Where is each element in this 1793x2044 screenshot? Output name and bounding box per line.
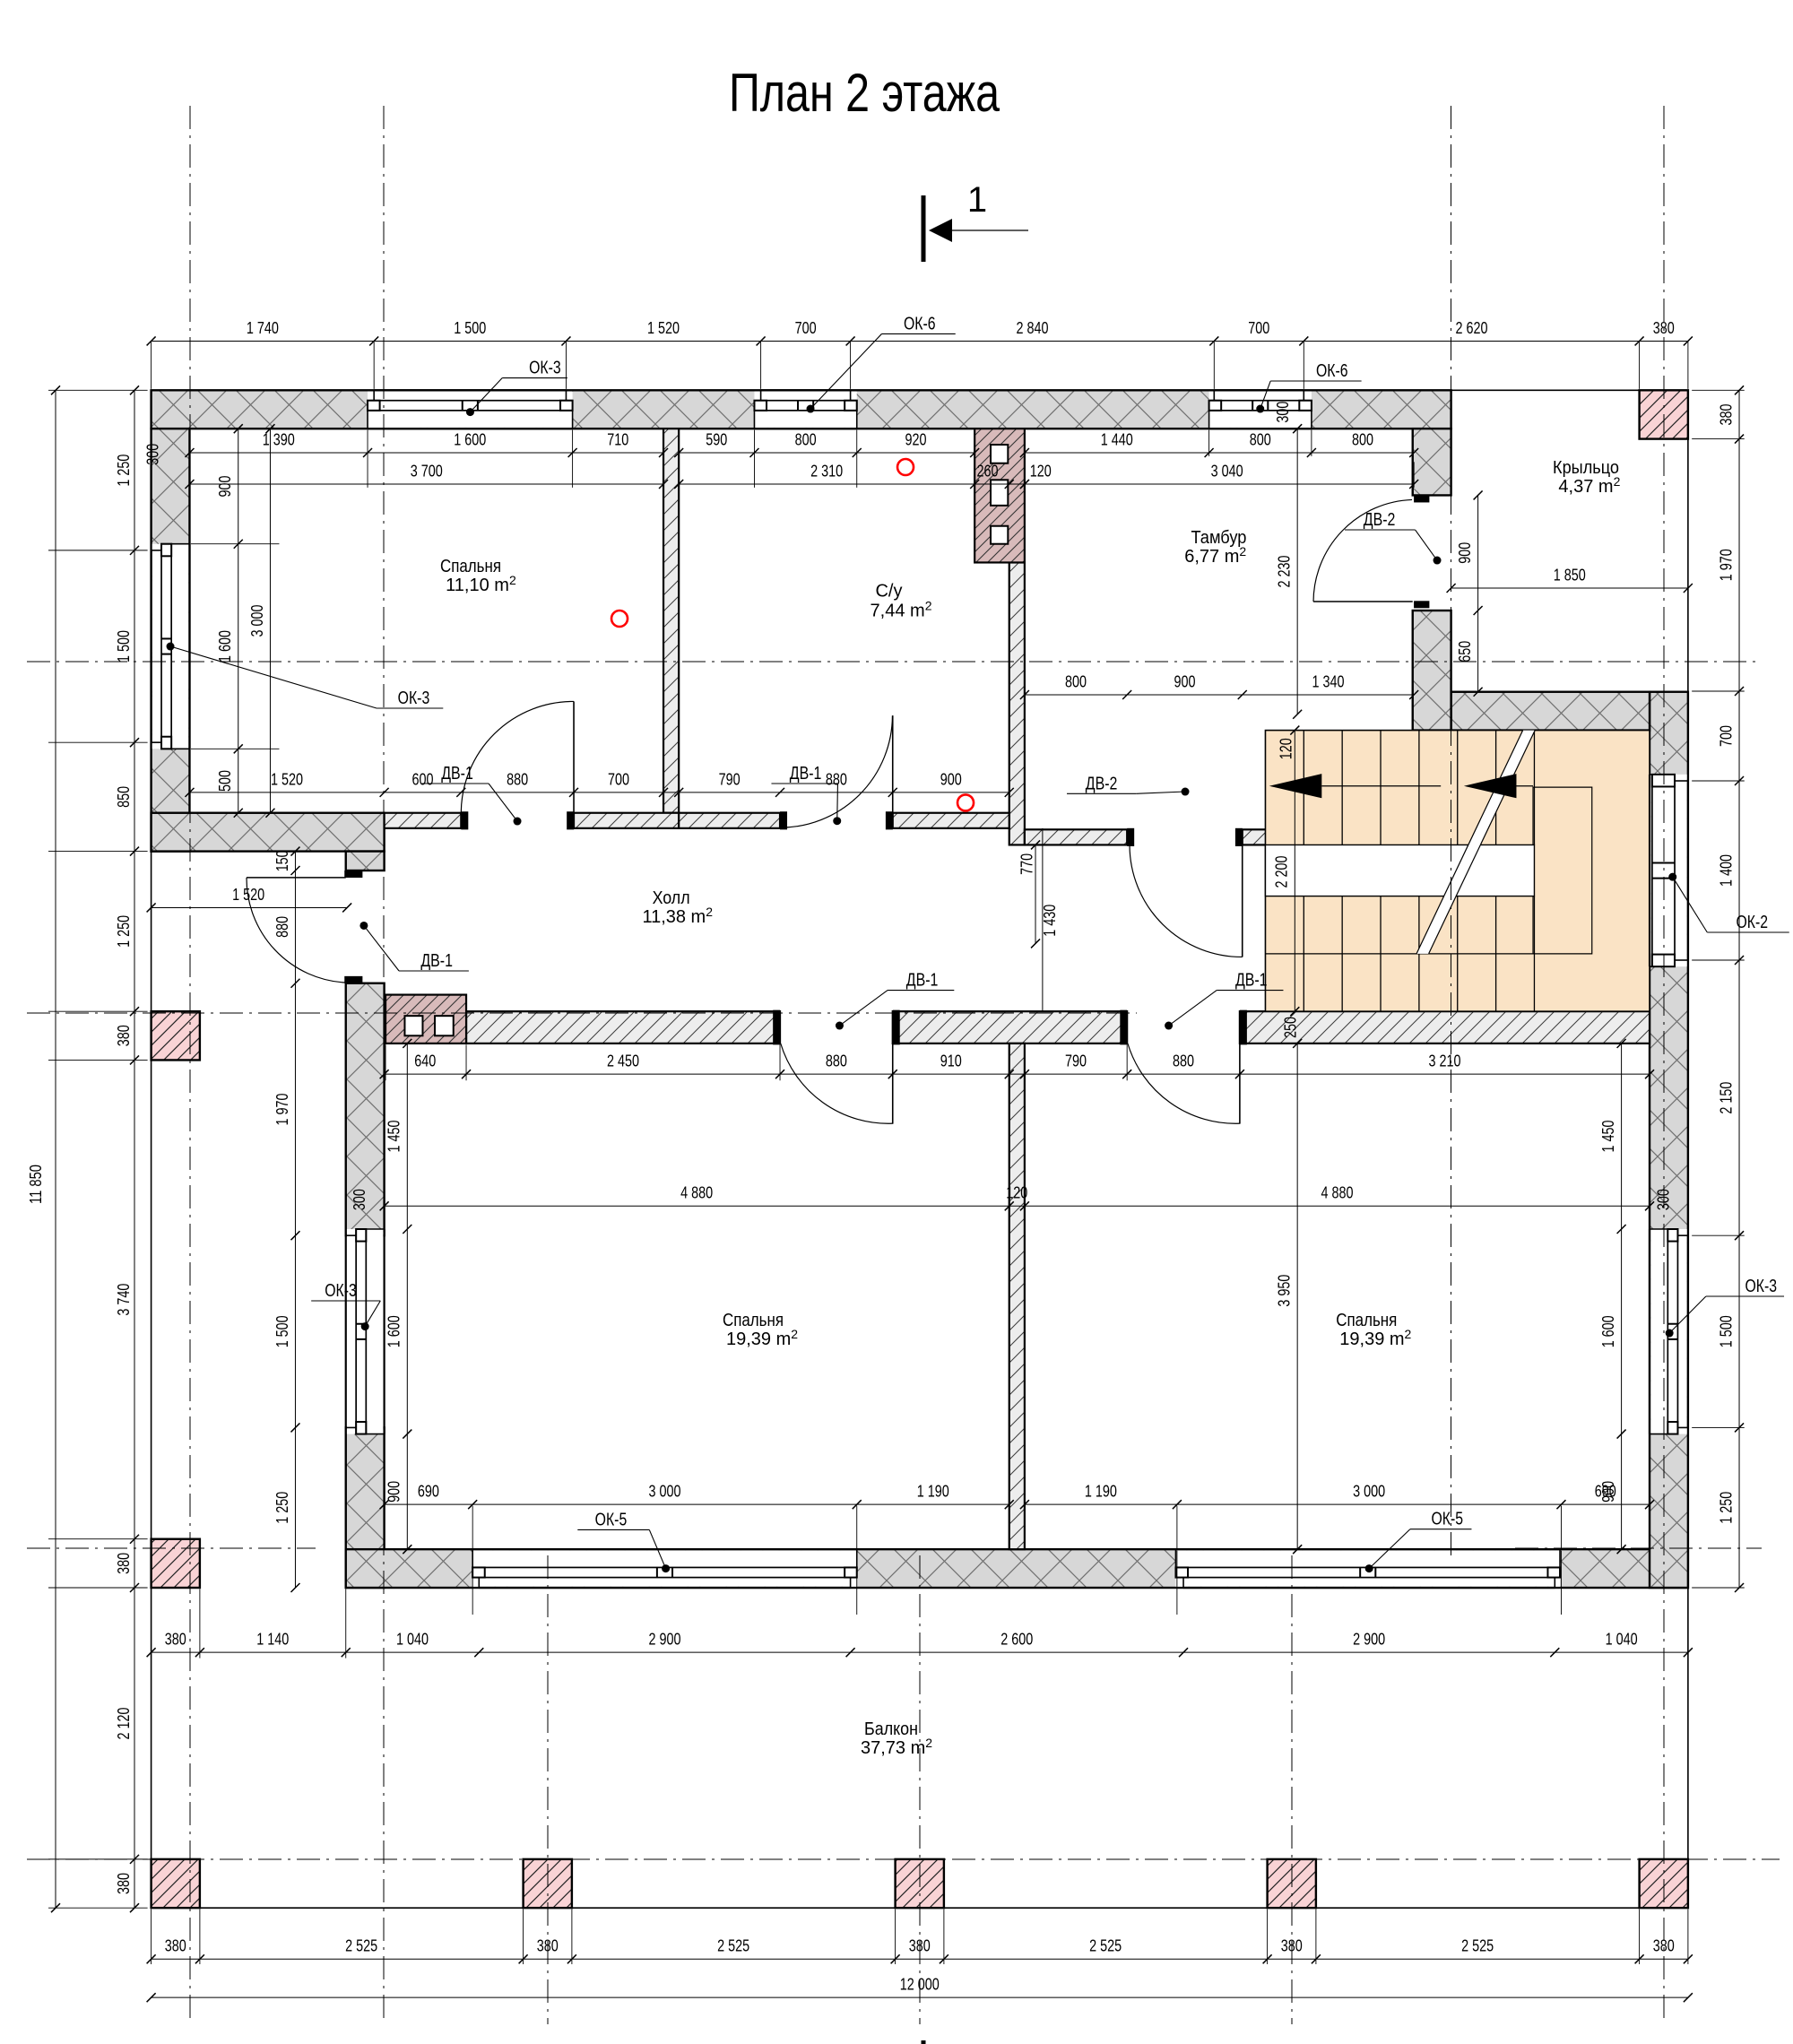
svg-text:640: 640 — [414, 1052, 436, 1070]
svg-text:19,39 m2: 19,39 m2 — [1339, 1327, 1411, 1349]
svg-text:2 525: 2 525 — [345, 1937, 377, 1955]
svg-text:880: 880 — [826, 1052, 847, 1070]
svg-text:800: 800 — [795, 430, 817, 448]
svg-text:1 250: 1 250 — [115, 915, 133, 948]
svg-text:1 140: 1 140 — [256, 1631, 289, 1649]
svg-text:1 450: 1 450 — [385, 1120, 403, 1152]
svg-text:ДВ-2: ДВ-2 — [1364, 510, 1396, 530]
svg-text:Крыльцо: Крыльцо — [1553, 458, 1619, 478]
svg-text:1 600: 1 600 — [385, 1315, 403, 1347]
svg-text:12 000: 12 000 — [900, 1976, 940, 1994]
svg-text:880: 880 — [507, 770, 528, 788]
svg-text:Спальня: Спальня — [1336, 1311, 1397, 1330]
svg-text:Холл: Холл — [653, 888, 690, 908]
svg-text:3 950: 3 950 — [1276, 1275, 1294, 1307]
svg-text:2 840: 2 840 — [1016, 319, 1048, 337]
svg-text:880: 880 — [273, 916, 291, 938]
svg-text:700: 700 — [1248, 319, 1269, 337]
svg-text:880: 880 — [1173, 1052, 1194, 1070]
svg-text:120: 120 — [1006, 1184, 1027, 1202]
svg-text:770: 770 — [1018, 853, 1035, 875]
svg-text:920: 920 — [905, 430, 926, 448]
svg-text:3 210: 3 210 — [1428, 1052, 1460, 1070]
svg-text:1 600: 1 600 — [454, 430, 486, 448]
svg-text:1 520: 1 520 — [271, 770, 303, 788]
svg-text:3 000: 3 000 — [648, 1483, 680, 1501]
svg-text:380: 380 — [115, 1873, 133, 1894]
svg-text:2 600: 2 600 — [1000, 1631, 1033, 1649]
svg-text:1 440: 1 440 — [1101, 430, 1133, 448]
svg-text:ДВ-1: ДВ-1 — [790, 764, 822, 784]
svg-text:690: 690 — [1595, 1483, 1616, 1501]
svg-text:880: 880 — [826, 770, 847, 788]
svg-text:380: 380 — [1717, 403, 1735, 425]
svg-text:1 970: 1 970 — [273, 1093, 291, 1125]
svg-text:ОК-5: ОК-5 — [595, 1510, 628, 1529]
svg-text:710: 710 — [607, 430, 628, 448]
svg-text:1 600: 1 600 — [1599, 1315, 1617, 1347]
svg-text:2 900: 2 900 — [648, 1631, 680, 1649]
svg-text:ДВ-2: ДВ-2 — [1086, 774, 1118, 793]
svg-text:380: 380 — [115, 1553, 133, 1574]
svg-text:2 525: 2 525 — [1461, 1937, 1494, 1955]
svg-text:1 250: 1 250 — [1717, 1492, 1735, 1524]
svg-text:1 040: 1 040 — [396, 1631, 429, 1649]
svg-text:1 400: 1 400 — [1717, 854, 1735, 887]
svg-text:1 390: 1 390 — [263, 430, 295, 448]
svg-text:150: 150 — [273, 850, 291, 871]
svg-text:380: 380 — [1653, 319, 1675, 337]
svg-text:2 620: 2 620 — [1455, 319, 1487, 337]
svg-text:Спальня: Спальня — [723, 1311, 784, 1330]
svg-text:1 250: 1 250 — [115, 455, 133, 487]
svg-text:900: 900 — [1456, 542, 1474, 564]
svg-text:ОК-6: ОК-6 — [1316, 361, 1348, 381]
svg-text:2 525: 2 525 — [717, 1937, 749, 1955]
svg-text:260: 260 — [976, 462, 998, 480]
svg-text:3 000: 3 000 — [248, 604, 266, 637]
svg-text:900: 900 — [1174, 672, 1195, 690]
svg-text:690: 690 — [418, 1483, 439, 1501]
svg-text:650: 650 — [1456, 641, 1474, 663]
svg-text:590: 590 — [706, 430, 727, 448]
svg-text:11,10 m2: 11,10 m2 — [446, 573, 516, 595]
svg-text:2 310: 2 310 — [810, 462, 843, 480]
svg-text:600: 600 — [411, 770, 433, 788]
svg-text:900: 900 — [940, 770, 962, 788]
svg-text:4 880: 4 880 — [1321, 1184, 1353, 1202]
svg-text:Балкон: Балкон — [864, 1719, 918, 1739]
svg-text:380: 380 — [1281, 1937, 1303, 1955]
svg-text:1 190: 1 190 — [917, 1483, 949, 1501]
svg-text:300: 300 — [143, 444, 161, 465]
svg-text:250: 250 — [1282, 1017, 1300, 1038]
svg-text:ОК-3: ОК-3 — [398, 689, 430, 708]
svg-text:1 250: 1 250 — [273, 1492, 291, 1524]
svg-text:1 040: 1 040 — [1606, 1631, 1638, 1649]
svg-text:3 700: 3 700 — [411, 462, 443, 480]
svg-text:1 740: 1 740 — [247, 319, 279, 337]
svg-text:380: 380 — [537, 1937, 559, 1955]
svg-text:850: 850 — [115, 786, 133, 808]
svg-text:380: 380 — [165, 1631, 186, 1649]
svg-text:С/у: С/у — [875, 581, 902, 601]
svg-text:2 900: 2 900 — [1353, 1631, 1385, 1649]
svg-text:11 850: 11 850 — [27, 1165, 45, 1204]
svg-text:ОК-3: ОК-3 — [529, 359, 561, 378]
svg-text:2 525: 2 525 — [1089, 1937, 1122, 1955]
svg-text:1 600: 1 600 — [216, 630, 234, 663]
svg-text:2 120: 2 120 — [115, 1707, 133, 1739]
svg-text:ОК-6: ОК-6 — [904, 314, 936, 333]
svg-text:ОК-3: ОК-3 — [1745, 1277, 1778, 1296]
svg-text:ДВ-1: ДВ-1 — [906, 971, 939, 991]
svg-text:900: 900 — [385, 1481, 403, 1503]
svg-text:800: 800 — [1352, 430, 1373, 448]
svg-text:ДВ-1: ДВ-1 — [441, 764, 473, 784]
svg-text:6,77 m2: 6,77 m2 — [1184, 544, 1246, 567]
svg-text:ОК-3: ОК-3 — [325, 1281, 357, 1301]
svg-text:1 500: 1 500 — [1717, 1315, 1735, 1347]
svg-text:ДВ-1: ДВ-1 — [1235, 971, 1268, 991]
svg-text:Тамбур: Тамбур — [1191, 528, 1246, 548]
svg-text:11,38 m2: 11,38 m2 — [642, 905, 713, 927]
svg-text:19,39 m2: 19,39 m2 — [726, 1327, 798, 1349]
svg-text:900: 900 — [216, 475, 234, 497]
svg-text:2 450: 2 450 — [607, 1052, 639, 1070]
svg-text:380: 380 — [165, 1937, 186, 1955]
svg-text:ОК-5: ОК-5 — [1432, 1510, 1464, 1529]
svg-text:120: 120 — [1278, 738, 1295, 759]
svg-text:Спальня: Спальня — [440, 557, 501, 576]
svg-text:1 430: 1 430 — [1041, 905, 1059, 937]
svg-text:2 230: 2 230 — [1276, 555, 1294, 587]
svg-text:120: 120 — [1030, 462, 1052, 480]
svg-text:1 340: 1 340 — [1312, 672, 1344, 690]
svg-text:790: 790 — [1065, 1052, 1087, 1070]
svg-text:1 500: 1 500 — [273, 1315, 291, 1347]
svg-text:3 000: 3 000 — [1353, 1483, 1385, 1501]
svg-text:1 970: 1 970 — [1717, 549, 1735, 581]
svg-text:790: 790 — [719, 770, 741, 788]
svg-text:3 040: 3 040 — [1211, 462, 1243, 480]
svg-text:4 880: 4 880 — [680, 1184, 713, 1202]
svg-text:План 2 этажа: План 2 этажа — [729, 63, 1000, 123]
svg-text:1 520: 1 520 — [232, 886, 264, 904]
svg-text:7,44 m2: 7,44 m2 — [871, 598, 932, 620]
svg-text:300: 300 — [1655, 1189, 1673, 1210]
svg-text:1 500: 1 500 — [115, 630, 133, 663]
svg-text:300: 300 — [1274, 402, 1292, 423]
svg-text:2 150: 2 150 — [1717, 1082, 1735, 1114]
svg-text:300: 300 — [351, 1189, 368, 1210]
svg-text:1 450: 1 450 — [1599, 1120, 1617, 1152]
svg-text:1 190: 1 190 — [1085, 1483, 1117, 1501]
svg-text:380: 380 — [909, 1937, 931, 1955]
svg-text:910: 910 — [940, 1052, 962, 1070]
svg-text:37,73 m2: 37,73 m2 — [861, 1736, 932, 1758]
svg-text:1 520: 1 520 — [647, 319, 680, 337]
svg-text:ДВ-1: ДВ-1 — [420, 951, 453, 971]
svg-text:1 850: 1 850 — [1554, 566, 1586, 584]
svg-text:700: 700 — [795, 319, 817, 337]
svg-text:700: 700 — [1717, 725, 1735, 747]
svg-text:1: 1 — [967, 180, 987, 220]
svg-text:700: 700 — [608, 770, 629, 788]
svg-text:500: 500 — [216, 770, 234, 792]
svg-text:800: 800 — [1250, 430, 1271, 448]
svg-text:ОК-2: ОК-2 — [1737, 913, 1769, 932]
svg-text:380: 380 — [1653, 1937, 1675, 1955]
svg-text:380: 380 — [115, 1025, 133, 1046]
svg-text:1 500: 1 500 — [454, 319, 486, 337]
svg-text:2 200: 2 200 — [1273, 855, 1291, 888]
svg-text:800: 800 — [1065, 672, 1087, 690]
svg-text:4,37 m2: 4,37 m2 — [1558, 474, 1620, 497]
svg-text:3 740: 3 740 — [115, 1284, 133, 1316]
